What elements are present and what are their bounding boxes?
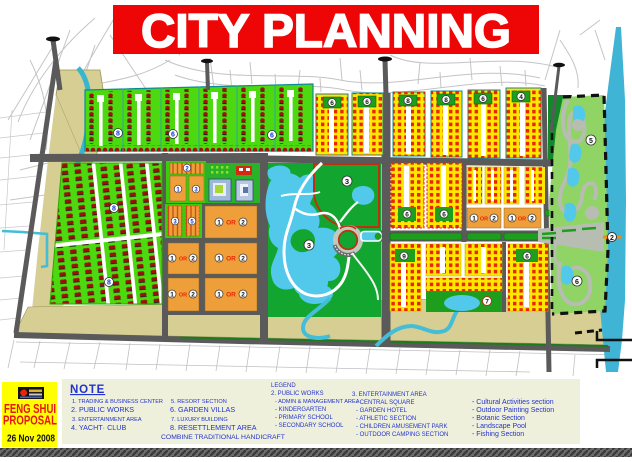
svg-text:- OUTDOOR CAMPING SECTION: - OUTDOOR CAMPING SECTION [356,432,448,438]
svg-text:1: 1 [217,220,221,227]
svg-text:1: 1 [472,216,476,223]
svg-text:LEGEND: LEGEND [271,383,296,389]
svg-text:1: 1 [217,256,221,263]
svg-text:8: 8 [406,98,410,105]
svg-text:2: 2 [492,216,496,223]
svg-text:5: 5 [589,138,593,145]
svg-text:2: 2 [241,220,245,227]
svg-text:OR: OR [179,293,187,299]
svg-text:2: 2 [191,256,195,263]
svg-text:OR: OR [179,257,187,263]
svg-text:3: 3 [345,177,349,186]
svg-text:2: 2 [241,256,245,263]
svg-text:4. YACHT· CLUB: 4. YACHT· CLUB [71,423,126,432]
svg-text:COMBINE TRADITIONAL HANDICRAFT: COMBINE TRADITIONAL HANDICRAFT [161,434,285,441]
svg-text:3. ENTERTAINMENT AREA: 3. ENTERTAINMENT AREA [352,392,427,398]
svg-text:- SECONDARY SCHOOL: - SECONDARY SCHOOL [275,423,344,429]
svg-text:6: 6 [171,132,175,139]
svg-text:OR: OR [226,256,236,263]
svg-text:9: 9 [402,254,406,261]
svg-text:7: 7 [485,299,489,306]
svg-text:8: 8 [112,206,116,213]
svg-text:6: 6 [405,212,409,219]
svg-text:8. RESETTLEMENT AREA: 8. RESETTLEMENT AREA [170,423,257,432]
svg-text:- Fishing Section: - Fishing Section [472,431,524,438]
svg-text:6: 6 [330,100,334,107]
svg-text:8: 8 [444,97,448,104]
svg-text:6: 6 [525,254,529,261]
svg-text:6: 6 [365,99,369,106]
svg-text:2: 2 [530,216,534,223]
svg-text:4: 4 [519,94,523,101]
svg-text:1: 1 [217,292,221,299]
svg-text:- KINDERGARTEN: - KINDERGARTEN [275,407,326,413]
svg-text:1: 1 [170,292,174,299]
svg-text:26 Nov 2008: 26 Nov 2008 [7,433,55,445]
svg-text:6: 6 [442,212,446,219]
svg-text:1: 1 [510,216,514,223]
svg-text:2: 2 [241,292,245,299]
svg-text:OR: OR [480,217,488,223]
svg-text:- ADMIN & MANAGEMENT AREA: - ADMIN & MANAGEMENT AREA [275,399,360,405]
svg-text:- ATHLETIC SECTION: - ATHLETIC SECTION [356,416,416,422]
svg-text:2: 2 [610,235,614,242]
svg-text:PROPOSAL: PROPOSAL [3,414,57,428]
svg-text:- PRIMARY SCHOOL: - PRIMARY SCHOOL [275,415,333,421]
svg-text:NOTE: NOTE [70,384,105,396]
svg-text:6: 6 [481,96,485,103]
svg-text:1: 1 [170,256,174,263]
svg-text:OR: OR [226,220,236,227]
svg-text:- GARDEN HOTEL: - GARDEN HOTEL [356,408,408,414]
svg-text:2. PUBLIC WORKS: 2. PUBLIC WORKS [71,405,134,414]
svg-text:OR: OR [518,217,526,223]
svg-text:- Cultural Activities section: - Cultural Activities section [472,399,554,406]
svg-text:- CHILDREN AMUSEMENT PARK: - CHILDREN AMUSEMENT PARK [356,424,447,430]
svg-text:- CENTRAL SQUARE: - CENTRAL SQUARE [356,400,414,406]
svg-text:- Botanic Section: - Botanic Section [472,415,525,422]
svg-text:8: 8 [116,131,120,138]
svg-text:6. GARDEN VILLAS: 6. GARDEN VILLAS [170,405,235,414]
svg-text:8: 8 [107,280,111,287]
svg-text:OR: OR [226,292,236,299]
svg-text:6: 6 [270,133,274,140]
svg-text:CITY PLANNING: CITY PLANNING [141,4,511,57]
svg-text:2. PUBLIC WORKS: 2. PUBLIC WORKS [271,391,324,397]
svg-text:6: 6 [575,279,579,286]
svg-text:2: 2 [191,292,195,299]
svg-text:- Landscape Pool: - Landscape Pool [472,423,527,430]
svg-text:3: 3 [307,241,311,250]
svg-text:- Outdoor Painting Section: - Outdoor Painting Section [472,407,554,414]
